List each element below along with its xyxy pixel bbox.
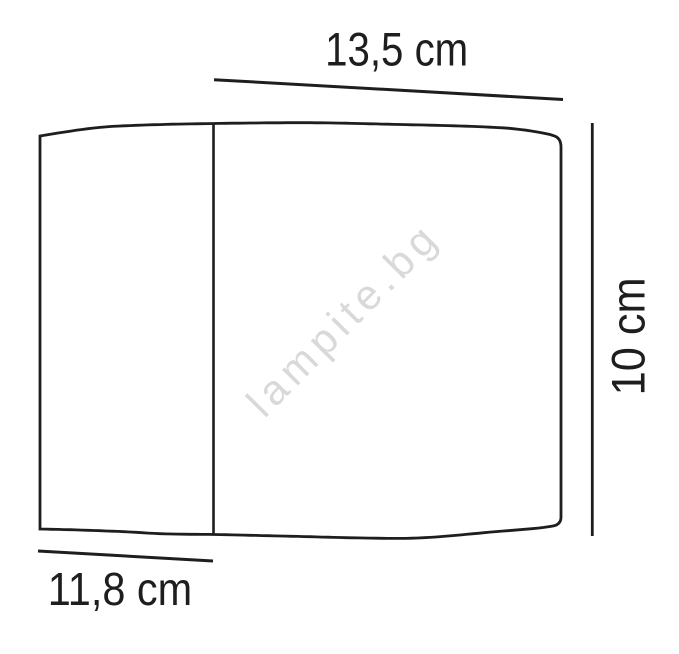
svg-text:13,5 cm: 13,5 cm bbox=[325, 23, 468, 76]
svg-text:10 cm: 10 cm bbox=[601, 277, 654, 395]
svg-text:11,8 cm: 11,8 cm bbox=[48, 563, 192, 615]
